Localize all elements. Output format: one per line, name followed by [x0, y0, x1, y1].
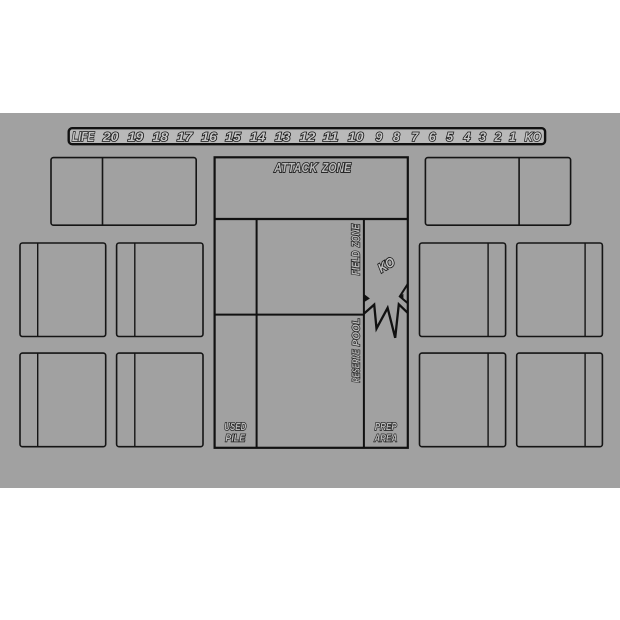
svg-text:13: 13 — [275, 130, 291, 144]
svg-text:ZONE: ZONE — [321, 160, 351, 175]
svg-text:AREA: AREA — [374, 432, 398, 444]
svg-text:POOL: POOL — [350, 318, 362, 346]
svg-text:4: 4 — [463, 130, 471, 144]
svg-text:6: 6 — [429, 130, 437, 144]
svg-text:USED: USED — [224, 421, 246, 433]
svg-text:20: 20 — [102, 130, 119, 144]
svg-text:14: 14 — [250, 130, 266, 144]
svg-text:16: 16 — [201, 130, 218, 144]
svg-text:11: 11 — [323, 130, 339, 144]
svg-text:12: 12 — [300, 130, 316, 144]
svg-text:FIELD: FIELD — [351, 251, 363, 276]
svg-text:5: 5 — [446, 130, 454, 144]
svg-text:PREP: PREP — [375, 421, 398, 433]
svg-text:KO: KO — [525, 130, 542, 144]
svg-text:ZONE: ZONE — [351, 224, 363, 248]
svg-text:ATTACK: ATTACK — [273, 160, 318, 175]
svg-text:RESERVE: RESERVE — [350, 349, 362, 383]
svg-text:9: 9 — [376, 130, 383, 144]
svg-text:7: 7 — [411, 130, 419, 144]
svg-text:19: 19 — [128, 130, 144, 144]
svg-text:8: 8 — [393, 130, 400, 144]
svg-text:18: 18 — [153, 130, 169, 144]
svg-text:PILE: PILE — [225, 432, 246, 444]
svg-text:LIFE: LIFE — [72, 129, 95, 144]
svg-text:2: 2 — [494, 130, 502, 144]
svg-text:10: 10 — [348, 130, 364, 144]
svg-text:15: 15 — [225, 130, 242, 144]
svg-text:17: 17 — [177, 130, 194, 144]
svg-text:1: 1 — [509, 130, 516, 144]
svg-text:3: 3 — [479, 130, 486, 144]
